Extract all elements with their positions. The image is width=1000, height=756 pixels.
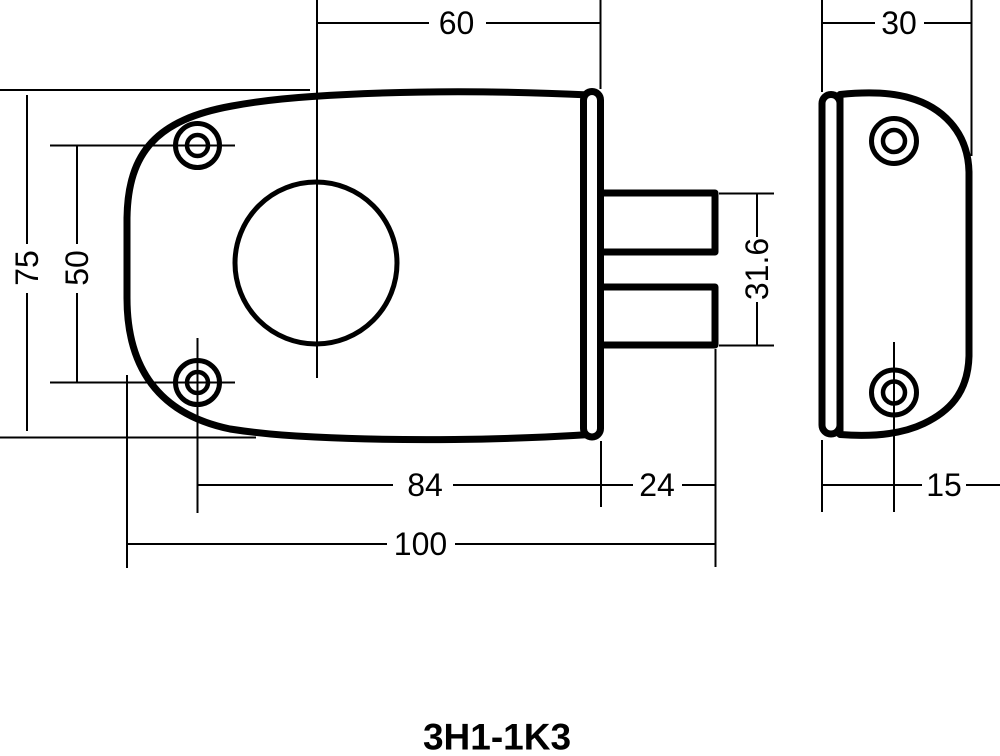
dim-60-label: 60 xyxy=(439,5,475,41)
dim-30-label: 30 xyxy=(881,5,917,41)
lock-technical-drawing: 60 30 75 50 31.6 84 24 15 100 3H1-1K3 xyxy=(0,0,1000,756)
bolt-lower-prong xyxy=(600,287,715,345)
dim-24-label: 24 xyxy=(639,467,675,503)
dim-75-label: 75 xyxy=(9,250,45,286)
dim-84-label: 84 xyxy=(407,467,443,503)
lock-technical-drawing-page: 60 30 75 50 31.6 84 24 15 100 3H1-1K3 xyxy=(0,0,1000,756)
drawing-title: 3H1-1K3 xyxy=(423,717,571,756)
dim-100-label: 100 xyxy=(394,526,447,562)
dim-15-label: 15 xyxy=(926,467,962,503)
bolt-upper-prong xyxy=(600,193,715,252)
side-faceplate xyxy=(822,95,840,435)
side-view xyxy=(822,93,969,435)
dim-31-6-label: 31.6 xyxy=(739,238,775,300)
front-body-outline xyxy=(127,92,590,440)
dim-50-label: 50 xyxy=(59,250,95,286)
front-faceplate xyxy=(584,92,601,438)
